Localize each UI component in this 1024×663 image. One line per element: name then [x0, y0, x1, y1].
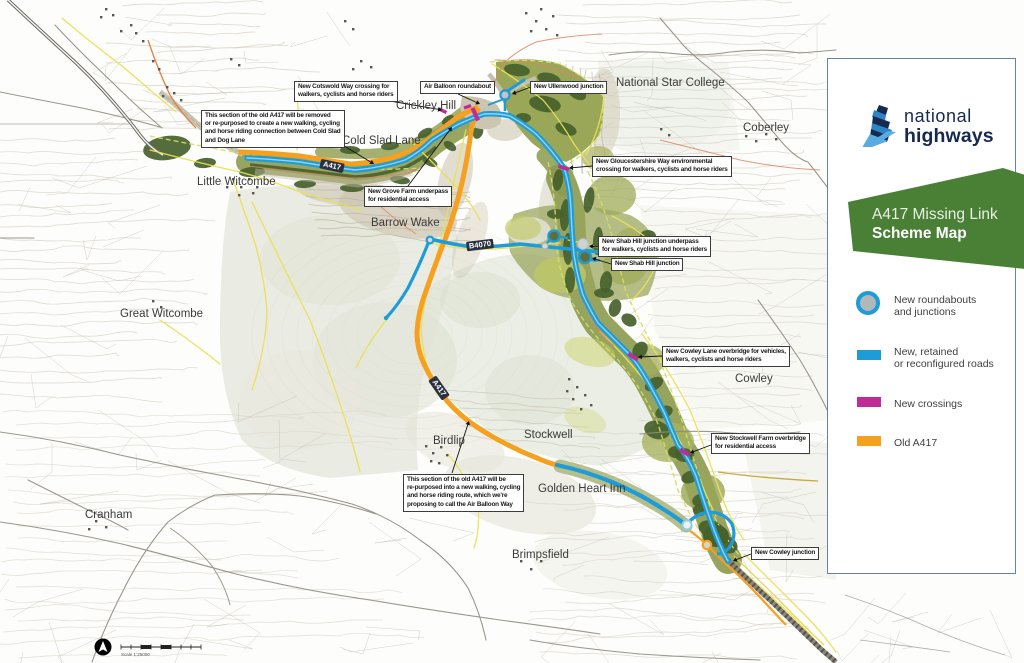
- svg-text:Brimpsfield: Brimpsfield: [512, 549, 569, 561]
- svg-text:Crickley Hill: Crickley Hill: [396, 100, 456, 112]
- svg-text:Barrow Wake: Barrow Wake: [371, 217, 440, 229]
- svg-text:Scale 1:25000: Scale 1:25000: [121, 652, 150, 657]
- svg-text:Little Witcombe: Little Witcombe: [197, 176, 276, 188]
- svg-text:Scheme Map: Scheme Map: [872, 225, 967, 242]
- svg-text:Cold Slad Lane: Cold Slad Lane: [342, 135, 421, 147]
- svg-text:Stockwell: Stockwell: [524, 429, 573, 441]
- svg-text:Great Witcombe: Great Witcombe: [120, 308, 203, 320]
- svg-text:Golden Heart Inn: Golden Heart Inn: [538, 483, 626, 495]
- svg-text:Cowley: Cowley: [735, 373, 773, 385]
- svg-text:National Star College: National Star College: [616, 77, 725, 89]
- svg-text:Cranham: Cranham: [85, 509, 132, 521]
- svg-text:A417 Missing Link: A417 Missing Link: [872, 206, 998, 223]
- svg-text:Birdlip: Birdlip: [433, 435, 465, 447]
- svg-text:Coberley: Coberley: [743, 122, 789, 134]
